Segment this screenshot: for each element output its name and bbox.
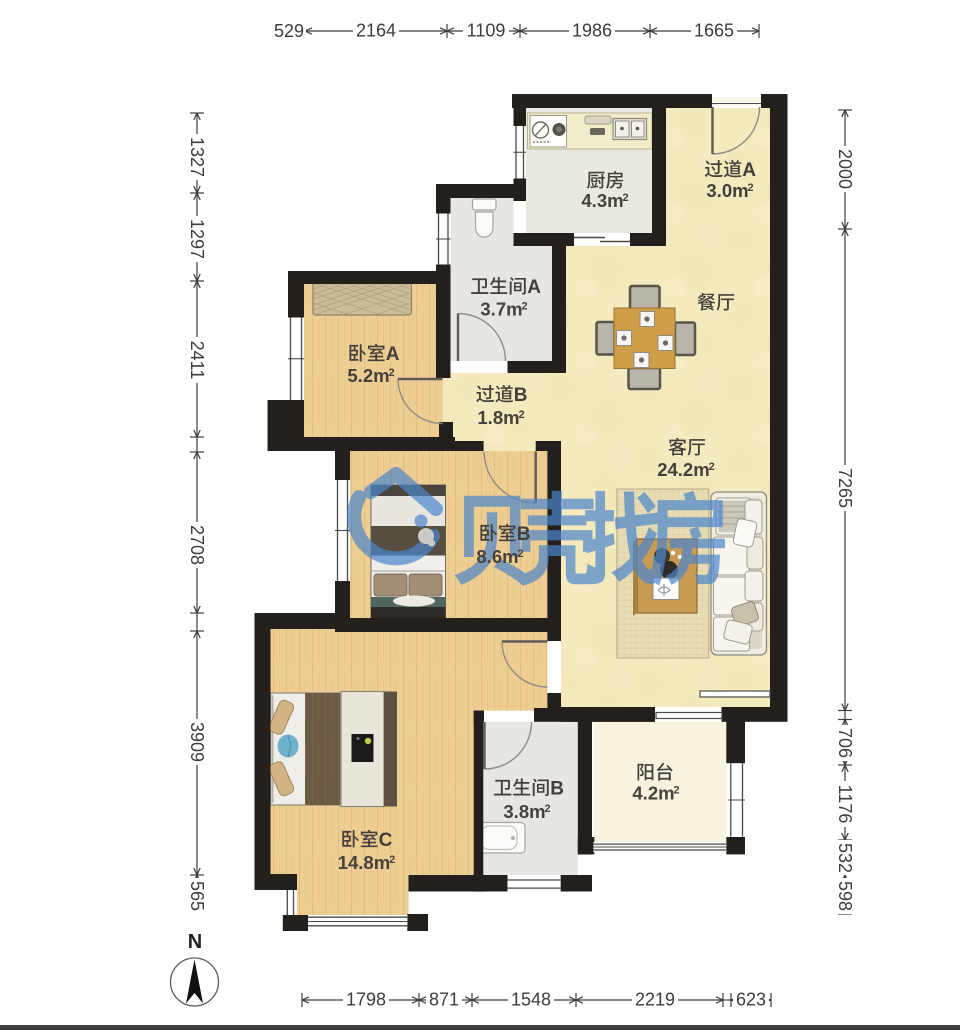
svg-text:2708: 2708	[187, 525, 207, 565]
svg-text:A: A	[386, 344, 400, 365]
svg-text:2: 2	[709, 461, 715, 473]
svg-text:C: C	[379, 830, 393, 851]
svg-text:3.8m: 3.8m	[503, 801, 545, 822]
svg-text:2219: 2219	[635, 990, 675, 1010]
svg-text:2: 2	[519, 409, 525, 421]
svg-text:532: 532	[835, 843, 855, 873]
svg-text:3.7m: 3.7m	[480, 299, 522, 320]
svg-text:4.3m: 4.3m	[581, 190, 623, 211]
svg-text:2: 2	[623, 192, 629, 204]
svg-text:5.2m: 5.2m	[347, 365, 389, 386]
svg-text:24.2m: 24.2m	[657, 459, 709, 480]
svg-text:2: 2	[389, 367, 395, 379]
svg-text:8.6m: 8.6m	[476, 546, 518, 567]
svg-text:7265: 7265	[835, 468, 855, 508]
svg-text:1109: 1109	[467, 21, 506, 41]
svg-text:14.8m: 14.8m	[338, 852, 390, 873]
svg-text:1548: 1548	[511, 990, 551, 1010]
svg-text:2411: 2411	[187, 341, 207, 380]
svg-text:2: 2	[522, 301, 528, 313]
svg-text:B: B	[550, 779, 564, 800]
svg-text:1986: 1986	[572, 21, 612, 41]
svg-text:871: 871	[429, 990, 459, 1010]
svg-text:N: N	[188, 931, 202, 953]
svg-text:2: 2	[389, 854, 395, 866]
svg-text:B: B	[514, 385, 528, 406]
svg-text:1176: 1176	[835, 785, 855, 824]
svg-text:706: 706	[835, 728, 855, 758]
svg-text:2000: 2000	[835, 149, 855, 189]
svg-text:598: 598	[835, 881, 855, 911]
svg-text:2: 2	[674, 785, 680, 797]
svg-text:A: A	[527, 277, 541, 298]
svg-text:A: A	[742, 160, 756, 181]
svg-text:1327: 1327	[187, 137, 207, 177]
svg-text:4.2m: 4.2m	[632, 783, 674, 804]
svg-text:529: 529	[274, 21, 304, 41]
svg-text:3909: 3909	[187, 722, 207, 762]
svg-text:2: 2	[545, 803, 551, 815]
svg-text:1665: 1665	[694, 21, 734, 41]
svg-text:1297: 1297	[187, 219, 207, 259]
svg-text:565: 565	[187, 881, 207, 911]
svg-text:1798: 1798	[346, 990, 386, 1010]
svg-text:623: 623	[736, 990, 766, 1010]
svg-text:2: 2	[518, 548, 524, 560]
svg-text:2: 2	[748, 182, 754, 194]
svg-text:B: B	[517, 524, 531, 545]
svg-text:1.8m: 1.8m	[477, 407, 519, 428]
svg-text:2164: 2164	[356, 21, 396, 41]
svg-text:3.0m: 3.0m	[706, 180, 748, 201]
